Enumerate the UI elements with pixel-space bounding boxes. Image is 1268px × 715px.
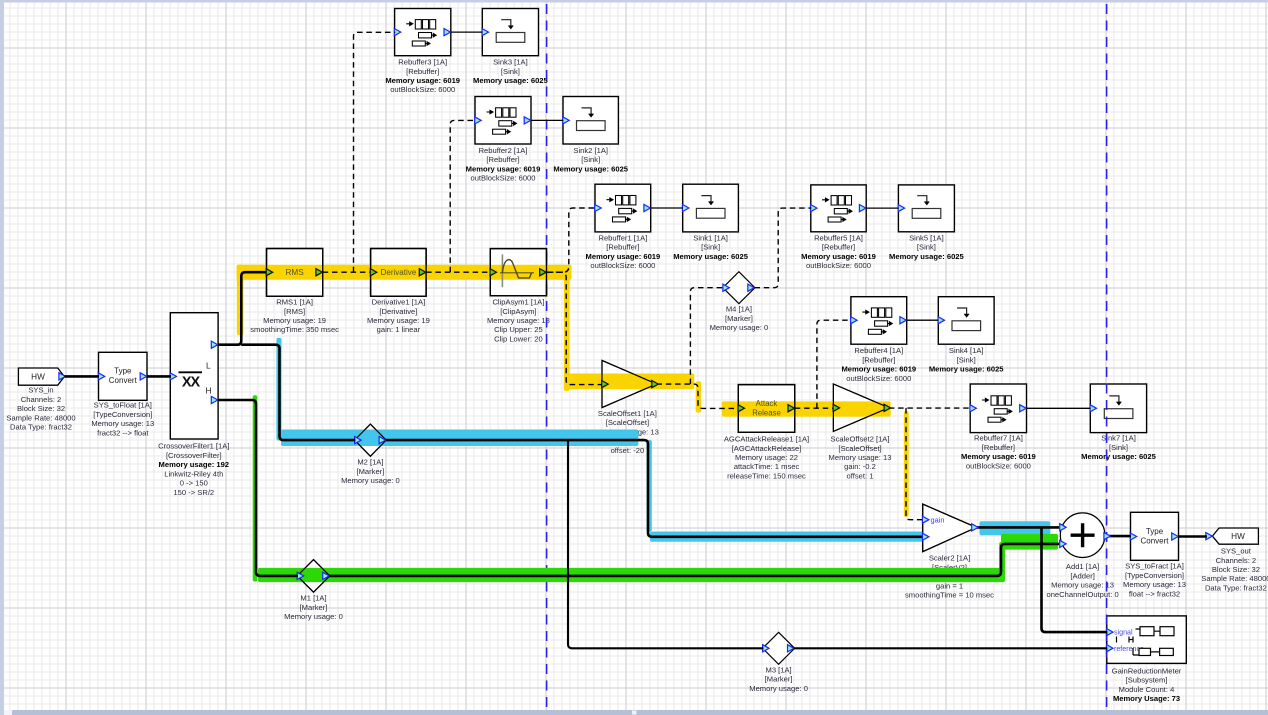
svg-text:[Rebuffer]: [Rebuffer] bbox=[486, 155, 519, 164]
svg-text:Memory Usage: 73: Memory Usage: 73 bbox=[1113, 694, 1180, 703]
svg-text:Memory usage: 6025: Memory usage: 6025 bbox=[1081, 452, 1156, 461]
svg-text:[Sink]: [Sink] bbox=[957, 355, 976, 364]
svg-text:Memory usage: 0: Memory usage: 0 bbox=[749, 684, 808, 693]
svg-text:[ScaleOffset]: [ScaleOffset] bbox=[838, 444, 881, 453]
svg-text:Memory usage: 6019: Memory usage: 6019 bbox=[961, 452, 1036, 461]
svg-text:releaseTime: 150 msec: releaseTime: 150 msec bbox=[727, 472, 806, 481]
svg-text:Module Count: 4: Module Count: 4 bbox=[1119, 685, 1175, 694]
svg-text:Linkwitz-Riley 4th: Linkwitz-Riley 4th bbox=[164, 469, 223, 478]
svg-text:Sample Rate: 48000: Sample Rate: 48000 bbox=[1201, 574, 1268, 583]
svg-text:ScaleOffset1 [1A]: ScaleOffset1 [1A] bbox=[598, 409, 657, 418]
svg-text:SYS_out: SYS_out bbox=[1221, 547, 1252, 556]
svg-text:Rebuffer1 [1A]: Rebuffer1 [1A] bbox=[598, 233, 647, 242]
svg-text:float --> fract32: float --> fract32 bbox=[1129, 589, 1180, 598]
svg-text:HW: HW bbox=[31, 373, 45, 382]
svg-text:SYS_toFloat [1A]: SYS_toFloat [1A] bbox=[94, 401, 152, 410]
svg-text:Type: Type bbox=[1146, 527, 1164, 536]
svg-text:Scaler2 [1A]: Scaler2 [1A] bbox=[929, 554, 970, 563]
svg-text:[RMS]: [RMS] bbox=[284, 307, 305, 316]
svg-text:0 -> 150: 0 -> 150 bbox=[180, 479, 208, 488]
svg-text:Memory usage: 6025: Memory usage: 6025 bbox=[553, 164, 628, 173]
svg-text:fract32 --> float: fract32 --> float bbox=[97, 428, 149, 437]
svg-text:Memory usage: 6019: Memory usage: 6019 bbox=[586, 252, 661, 261]
svg-text:Sink3 [1A]: Sink3 [1A] bbox=[493, 58, 528, 67]
svg-text:Memory usage: 19: Memory usage: 19 bbox=[367, 316, 430, 325]
svg-text:[Derivative]: [Derivative] bbox=[379, 307, 417, 316]
svg-text:[Sink]: [Sink] bbox=[1109, 443, 1128, 452]
svg-text:ClipAsym1 [1A]: ClipAsym1 [1A] bbox=[492, 298, 544, 307]
svg-text:Sink4 [1A]: Sink4 [1A] bbox=[949, 346, 984, 355]
svg-text:[Sink]: [Sink] bbox=[701, 243, 720, 252]
svg-text:RMS: RMS bbox=[285, 268, 304, 277]
svg-text:offset: -20: offset: -20 bbox=[611, 446, 645, 455]
svg-text:XX: XX bbox=[182, 375, 201, 391]
svg-text:Memory usage: 18: Memory usage: 18 bbox=[487, 316, 550, 325]
svg-text:Memory usage: 6025: Memory usage: 6025 bbox=[473, 76, 548, 85]
svg-text:Derivative: Derivative bbox=[381, 268, 417, 277]
svg-text:[Sink]: [Sink] bbox=[581, 155, 600, 164]
svg-text:Memory usage: 6019: Memory usage: 6019 bbox=[801, 252, 876, 261]
svg-text:Data Type: fract32: Data Type: fract32 bbox=[1205, 584, 1267, 593]
svg-text:smoothingTime = 10 msec: smoothingTime = 10 msec bbox=[905, 591, 994, 600]
svg-text:Rebuffer5 [1A]: Rebuffer5 [1A] bbox=[814, 233, 863, 242]
svg-text:outBlockSize: 6000: outBlockSize: 6000 bbox=[470, 174, 535, 183]
svg-text:M4 [1A]: M4 [1A] bbox=[726, 305, 752, 314]
svg-text:[AGCAttackRelease]: [AGCAttackRelease] bbox=[732, 444, 802, 453]
svg-text:RMS1 [1A]: RMS1 [1A] bbox=[276, 298, 313, 307]
svg-text:M1 [1A]: M1 [1A] bbox=[300, 594, 326, 603]
svg-text:Memory usage: 6025: Memory usage: 6025 bbox=[889, 252, 964, 261]
svg-text:Memory usage: 0: Memory usage: 0 bbox=[710, 323, 769, 332]
svg-text:Clip Upper: 25: Clip Upper: 25 bbox=[494, 325, 543, 334]
svg-text:Memory usage: 6025: Memory usage: 6025 bbox=[673, 252, 748, 261]
svg-text:[ScaleOffset]: [ScaleOffset] bbox=[606, 418, 649, 427]
svg-text:Memory usage: 6019: Memory usage: 6019 bbox=[466, 164, 541, 173]
svg-text:Block Size: 32: Block Size: 32 bbox=[17, 404, 65, 413]
svg-text:outBlockSize: 6000: outBlockSize: 6000 bbox=[590, 261, 655, 270]
svg-text:Memory usage: 6019: Memory usage: 6019 bbox=[841, 365, 916, 374]
svg-text:H: H bbox=[206, 386, 212, 396]
svg-text:[Sink]: [Sink] bbox=[501, 67, 520, 76]
svg-text:Memory usage: 192: Memory usage: 192 bbox=[159, 460, 229, 469]
svg-text:Channels: 2: Channels: 2 bbox=[1216, 556, 1257, 565]
svg-text:Memory usage: 13: Memory usage: 13 bbox=[1123, 580, 1186, 589]
svg-text:[Adder]: [Adder] bbox=[1070, 572, 1094, 581]
svg-text:Memory usage: 13: Memory usage: 13 bbox=[829, 453, 892, 462]
svg-text:outBlockSize: 6000: outBlockSize: 6000 bbox=[806, 261, 871, 270]
svg-text:outBlockSize: 6000: outBlockSize: 6000 bbox=[966, 461, 1031, 470]
svg-text:Sample Rate: 48000: Sample Rate: 48000 bbox=[6, 413, 75, 422]
svg-text:ScaleOffset2 [1A]: ScaleOffset2 [1A] bbox=[831, 435, 890, 444]
svg-text:Channels: 2: Channels: 2 bbox=[21, 395, 62, 404]
svg-text:Sink2 [1A]: Sink2 [1A] bbox=[573, 146, 608, 155]
svg-text:Memory usage: 22: Memory usage: 22 bbox=[735, 453, 798, 462]
svg-text:Memory usage: 0: Memory usage: 0 bbox=[341, 476, 400, 485]
svg-text:Derivative1 [1A]: Derivative1 [1A] bbox=[372, 298, 426, 307]
svg-text:Clip Lower: 20: Clip Lower: 20 bbox=[494, 335, 543, 344]
svg-text:Memory usage: 13: Memory usage: 13 bbox=[91, 419, 154, 428]
svg-text:L: L bbox=[206, 361, 211, 371]
svg-text:Sink1 [1A]: Sink1 [1A] bbox=[693, 233, 728, 242]
svg-text:Release: Release bbox=[752, 409, 781, 418]
svg-text:oneChannelOutput: 0: oneChannelOutput: 0 bbox=[1046, 590, 1118, 599]
svg-text:Data Type: fract32: Data Type: fract32 bbox=[10, 423, 72, 432]
svg-text:AGCAttackRelease1 [1A]: AGCAttackRelease1 [1A] bbox=[724, 435, 809, 444]
svg-text:signal: signal bbox=[1114, 629, 1133, 637]
svg-text:Memory usage: 6019: Memory usage: 6019 bbox=[385, 76, 460, 85]
svg-text:Block Size: 32: Block Size: 32 bbox=[1212, 565, 1260, 574]
svg-text:GainReductionMeter: GainReductionMeter bbox=[1112, 666, 1182, 675]
svg-text:SYS_toFract [1A]: SYS_toFract [1A] bbox=[1125, 562, 1184, 571]
svg-text:Attack: Attack bbox=[756, 399, 778, 408]
svg-text:[Rebuffer]: [Rebuffer] bbox=[406, 67, 439, 76]
svg-text:[TypeConversion]: [TypeConversion] bbox=[93, 410, 152, 419]
svg-text:outBlockSize: 6000: outBlockSize: 6000 bbox=[390, 85, 455, 94]
svg-text:[Sink]: [Sink] bbox=[917, 243, 936, 252]
svg-text:Rebuffer4 [1A]: Rebuffer4 [1A] bbox=[854, 346, 903, 355]
svg-text:150 -> SR/2: 150 -> SR/2 bbox=[173, 488, 214, 497]
svg-text:smoothingTime: 350 msec: smoothingTime: 350 msec bbox=[250, 325, 339, 334]
svg-text:SYS_in: SYS_in bbox=[28, 386, 53, 395]
svg-text:Type: Type bbox=[114, 367, 132, 376]
svg-text:Add1 [1A]: Add1 [1A] bbox=[1066, 562, 1099, 571]
svg-text:CrossoverFilter1 [1A]: CrossoverFilter1 [1A] bbox=[158, 442, 229, 451]
svg-text:Rebuffer7 [1A]: Rebuffer7 [1A] bbox=[974, 434, 1023, 443]
svg-text:[CrossoverFilter]: [CrossoverFilter] bbox=[166, 451, 222, 460]
svg-text:HW: HW bbox=[1231, 532, 1245, 541]
svg-text:gain = 1: gain = 1 bbox=[936, 582, 963, 591]
svg-text:[Subsystem]: [Subsystem] bbox=[1126, 676, 1168, 685]
svg-text:gain: gain bbox=[931, 515, 945, 524]
svg-text:M3 [1A]: M3 [1A] bbox=[766, 665, 792, 674]
svg-text:[Rebuffer]: [Rebuffer] bbox=[606, 243, 639, 252]
svg-text:Memory usage: 0: Memory usage: 0 bbox=[284, 612, 343, 621]
svg-text:[ClipAsym]: [ClipAsym] bbox=[500, 307, 536, 316]
svg-text:outBlockSize: 6000: outBlockSize: 6000 bbox=[846, 374, 911, 383]
svg-text:Convert: Convert bbox=[1140, 536, 1169, 545]
svg-text:gain: -0.2: gain: -0.2 bbox=[844, 462, 876, 471]
svg-text:Memory usage: 13: Memory usage: 13 bbox=[1051, 581, 1114, 590]
svg-text:[Marker]: [Marker] bbox=[300, 603, 328, 612]
svg-text:Convert: Convert bbox=[109, 376, 138, 385]
svg-text:[Rebuffer]: [Rebuffer] bbox=[862, 355, 895, 364]
svg-text:[Marker]: [Marker] bbox=[725, 314, 753, 323]
svg-text:offset: 1: offset: 1 bbox=[847, 472, 874, 481]
svg-text:Rebuffer2 [1A]: Rebuffer2 [1A] bbox=[479, 146, 528, 155]
svg-text:gain: 1 linear: gain: 1 linear bbox=[377, 325, 421, 334]
svg-text:M2 [1A]: M2 [1A] bbox=[357, 458, 383, 467]
svg-text:[Rebuffer]: [Rebuffer] bbox=[982, 443, 1015, 452]
svg-text:[Marker]: [Marker] bbox=[765, 675, 793, 684]
svg-text:Rebuffer3 [1A]: Rebuffer3 [1A] bbox=[398, 58, 447, 67]
svg-text:[TypeConversion]: [TypeConversion] bbox=[1125, 571, 1184, 580]
svg-text:Sink5 [1A]: Sink5 [1A] bbox=[909, 233, 944, 242]
svg-text:Memory usage: 6025: Memory usage: 6025 bbox=[929, 365, 1004, 374]
svg-text:[Rebuffer]: [Rebuffer] bbox=[822, 243, 855, 252]
svg-text:[Marker]: [Marker] bbox=[356, 467, 384, 476]
svg-text:attackTime: 1 msec: attackTime: 1 msec bbox=[734, 462, 800, 471]
svg-text:Memory usage: 19: Memory usage: 19 bbox=[263, 316, 326, 325]
